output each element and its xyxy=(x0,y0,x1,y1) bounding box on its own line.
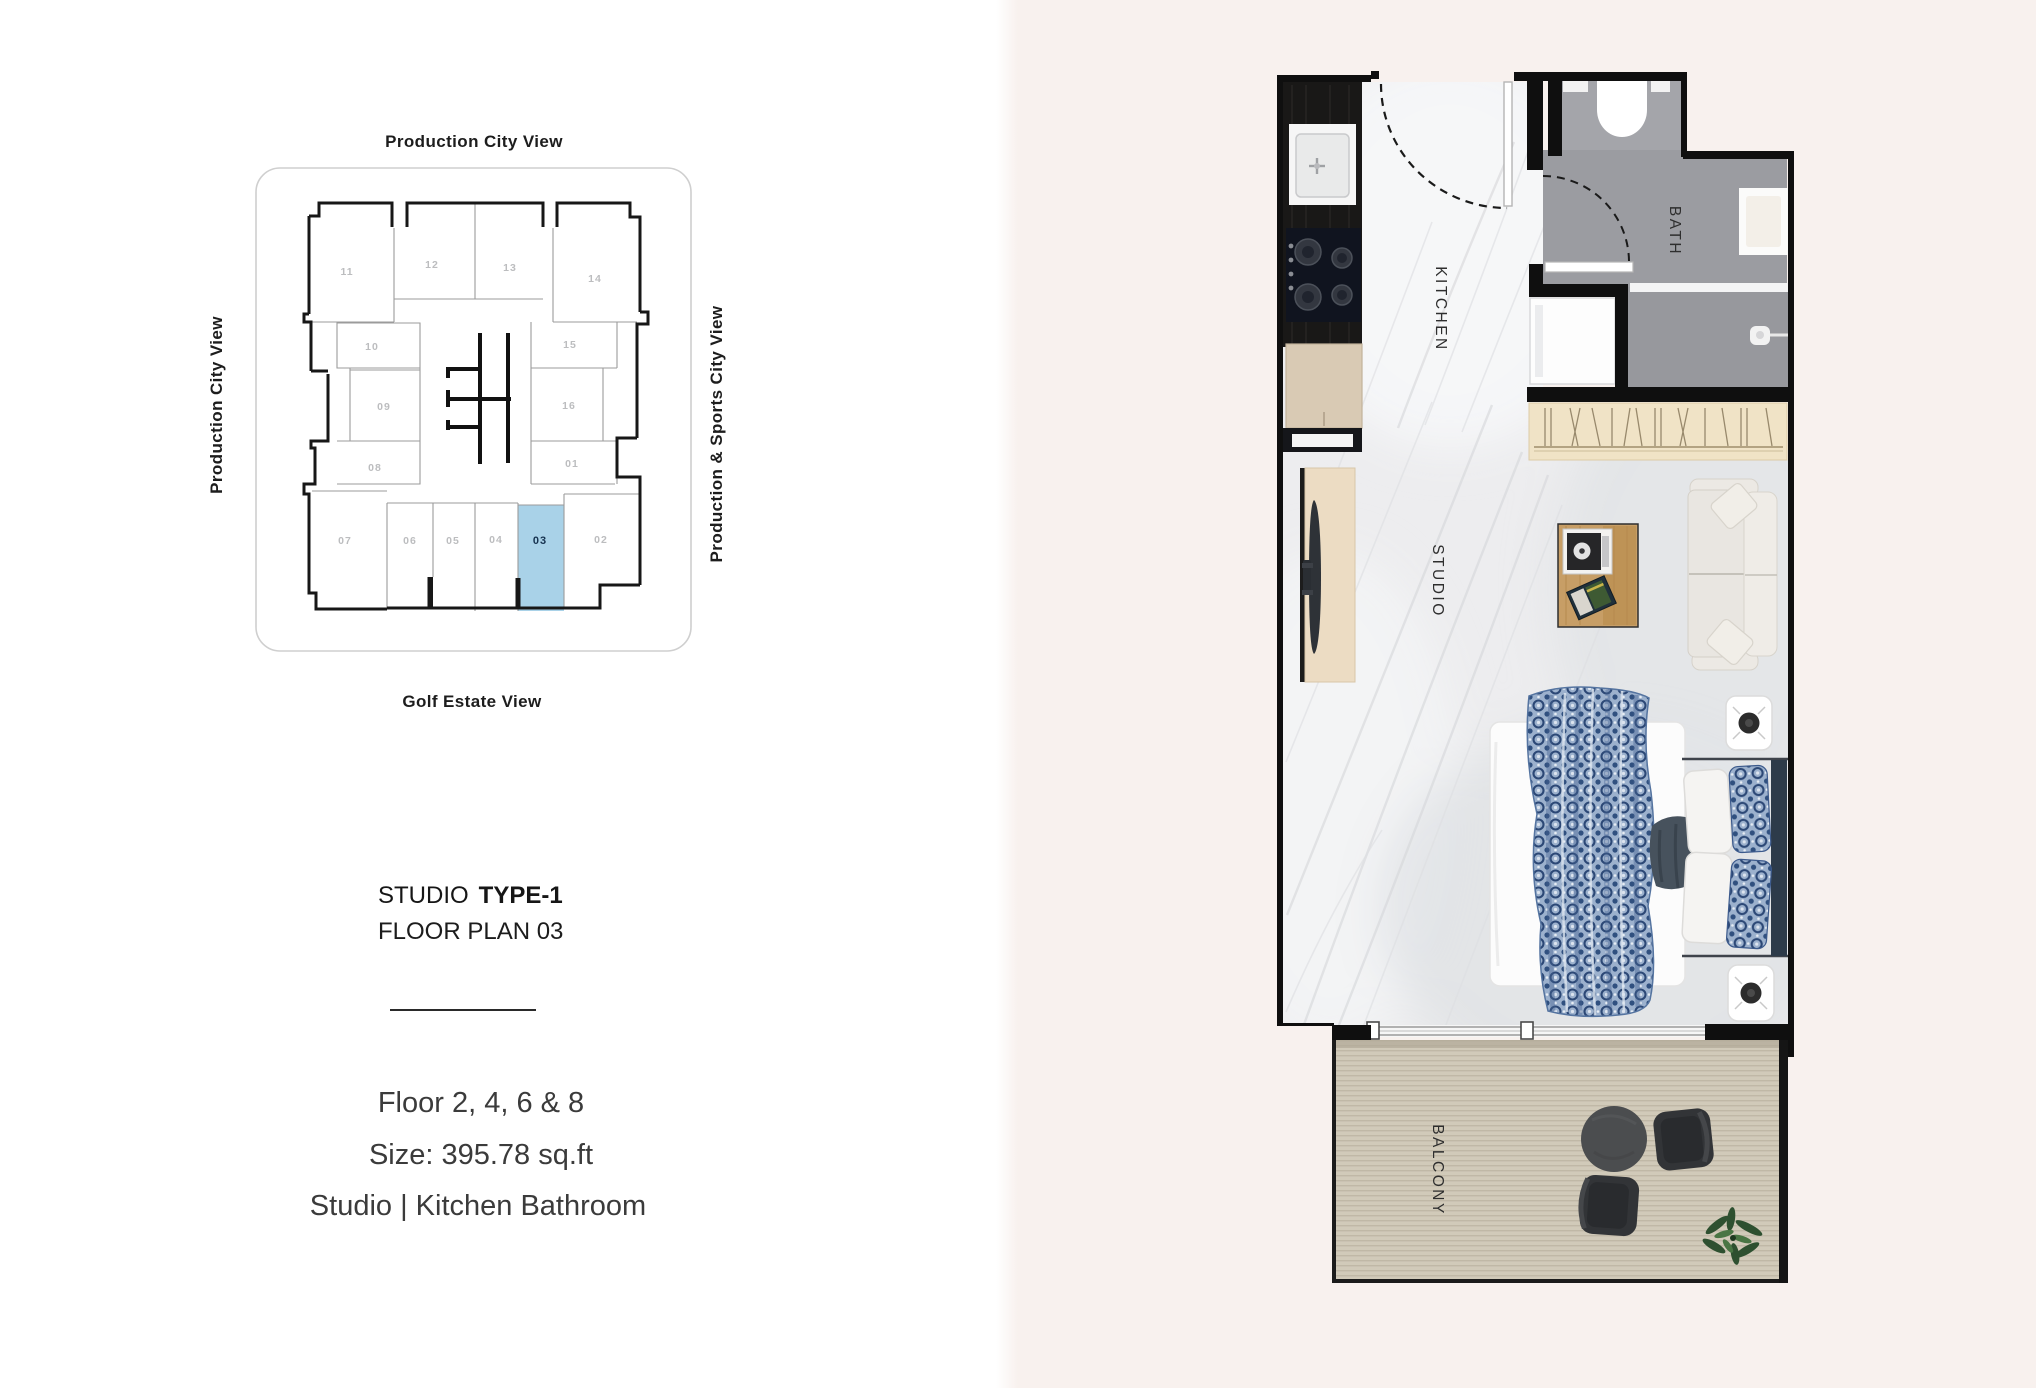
svg-text:Production City View: Production City View xyxy=(207,316,226,494)
svg-text:STUDIO: STUDIO xyxy=(1429,544,1446,618)
svg-text:FLOOR PLAN 03: FLOOR PLAN 03 xyxy=(378,918,563,945)
svg-text:13: 13 xyxy=(503,262,517,274)
svg-text:03: 03 xyxy=(533,535,547,547)
svg-text:Floor 2, 4, 6 & 8: Floor 2, 4, 6 & 8 xyxy=(378,1087,584,1119)
svg-text:06: 06 xyxy=(403,535,417,547)
svg-text:05: 05 xyxy=(446,535,460,547)
svg-text:04: 04 xyxy=(489,534,503,546)
svg-text:12: 12 xyxy=(425,259,439,271)
svg-text:Studio | Kitchen Bathroom: Studio | Kitchen Bathroom xyxy=(310,1190,646,1222)
svg-text:Size: 395.78 sq.ft: Size: 395.78 sq.ft xyxy=(369,1139,593,1171)
svg-text:08: 08 xyxy=(368,462,382,474)
svg-text:01: 01 xyxy=(565,458,579,470)
svg-text:STUDIOTYPE-1: STUDIOTYPE-1 xyxy=(378,882,563,909)
svg-text:BATH: BATH xyxy=(1666,206,1683,256)
svg-text:07: 07 xyxy=(338,535,352,547)
svg-text:BALCONY: BALCONY xyxy=(1429,1124,1446,1216)
svg-text:02: 02 xyxy=(594,534,608,546)
svg-text:KITCHEN: KITCHEN xyxy=(1432,266,1449,352)
svg-text:Production & Sports City View: Production & Sports City View xyxy=(707,305,726,562)
svg-text:15: 15 xyxy=(563,339,577,351)
svg-text:Production City View: Production City View xyxy=(385,132,563,151)
svg-text:16: 16 xyxy=(562,400,576,412)
svg-text:Golf Estate View: Golf Estate View xyxy=(402,692,542,711)
svg-text:09: 09 xyxy=(377,401,391,413)
svg-text:14: 14 xyxy=(588,273,602,285)
svg-text:11: 11 xyxy=(340,266,353,278)
svg-text:10: 10 xyxy=(365,341,379,353)
